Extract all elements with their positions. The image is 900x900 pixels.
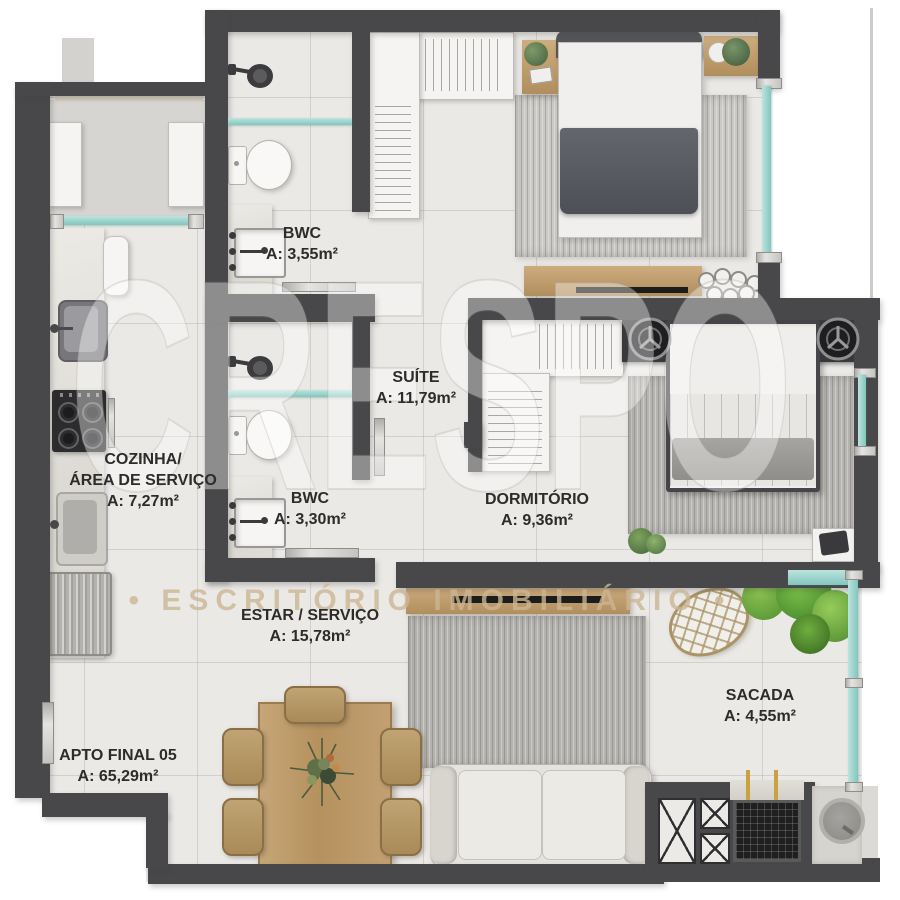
hall-glass-partition (62, 216, 188, 225)
shower-top (226, 56, 276, 92)
wall-dorm-door-stub (464, 422, 482, 448)
estar-tv (452, 596, 602, 603)
wall-bottom (148, 864, 664, 884)
washing-machine (46, 572, 112, 656)
wall-bwc-bottom-right (352, 322, 370, 480)
room-area: A: 11,79m² (376, 389, 456, 410)
label-suite: SUÍTE A: 11,79m² (376, 368, 456, 410)
dining-chair-top (284, 686, 346, 724)
railing-post-bottom (845, 782, 863, 792)
dining-chair-left-2 (222, 798, 264, 856)
dorm-closet-top (482, 318, 624, 377)
hall-cabinet-right (168, 122, 204, 207)
sofa-cushion-right (542, 770, 626, 860)
room-area: A: 7,27m² (69, 492, 217, 513)
wall-bwc-top-right (352, 32, 370, 212)
dining-chair-left-1 (222, 728, 264, 786)
wall-hall-top (15, 82, 210, 96)
bbq-grill (733, 800, 801, 862)
dorm-window (858, 375, 866, 447)
dorm-plant-b (646, 534, 666, 554)
table-centerpiece (278, 728, 366, 816)
toilet-bowl-bottom (246, 410, 292, 460)
suite-bed-blanket (560, 128, 698, 214)
floor-plan: CRESPO • ESCRITÓRIO IMOBILIÁRIO • BWC A:… (0, 0, 900, 900)
outside-top-left (0, 0, 205, 82)
label-dormitorio: DORMITÓRIO A: 9,36m² (485, 490, 589, 532)
wall-bottom-left-v (146, 812, 168, 868)
room-name: ESTAR / SERVIÇO (241, 606, 379, 627)
dining-chair-right-2 (380, 798, 422, 856)
room-name: SACADA (724, 686, 796, 707)
suite-closet-leg (368, 32, 420, 219)
shower-glass-top (228, 118, 352, 125)
label-bwc-bottom: BWC A: 3,30m² (274, 489, 346, 531)
outside-sacada-right (862, 572, 900, 786)
sacada-sink (819, 798, 865, 844)
outside-top-right (780, 0, 900, 298)
room-name: DORMITÓRIO (485, 490, 589, 511)
sofa-cushion-left (458, 770, 542, 860)
toilet-flush-top (234, 161, 239, 166)
dorm-window-cap-bottom (854, 446, 876, 456)
bbq-skewer-1 (746, 770, 750, 802)
outside-left (0, 82, 15, 900)
suite-door-threshold (374, 418, 385, 476)
wall-dorm-closet-frame (468, 314, 482, 472)
toilet-bowl-top (246, 140, 292, 190)
sofa-arm-left (430, 766, 457, 864)
railing-post-mid (845, 678, 863, 688)
suite-magazine (529, 67, 553, 85)
room-area: A: 3,55m² (266, 245, 338, 266)
room-name: BWC (266, 224, 338, 245)
dorm-desk-object (819, 530, 850, 556)
apartment-name: APTO FINAL 05 (59, 746, 177, 767)
oven-handle (108, 398, 115, 448)
room-name: BWC (274, 489, 346, 510)
door-threshold-bwc-top (282, 282, 356, 292)
wall-bwc-divider (205, 294, 375, 322)
bbq-skewer-2 (774, 770, 778, 802)
room-name-2: ÁREA DE SERVIÇO (69, 471, 217, 492)
sacada-plant-d (790, 614, 830, 654)
kitchen-faucet-arm (57, 327, 73, 330)
label-sacada: SACADA A: 4,55m² (724, 686, 796, 728)
left-wall-window (42, 702, 54, 764)
door-threshold-bwc-bottom (285, 548, 359, 558)
estar-rug (408, 616, 646, 768)
cooktop (52, 390, 106, 452)
sacada-door-glass (788, 570, 850, 585)
room-area: A: 9,36m² (485, 511, 589, 532)
label-cozinha: COZINHA/ ÁREA DE SERVIÇO A: 7,27m² (69, 450, 217, 512)
hall-cabinet-left (48, 122, 82, 207)
duct-shaft-small-2 (700, 833, 730, 864)
room-name: SUÍTE (376, 368, 456, 389)
suite-plant-left (524, 42, 548, 66)
dining-chair-right-1 (380, 728, 422, 786)
dorm-wheel-left (628, 317, 672, 361)
wall-top (205, 10, 778, 32)
kitchen-appliance (103, 236, 129, 296)
shower-bottom (226, 348, 276, 384)
room-area: A: 15,78m² (241, 627, 379, 648)
suite-window (762, 86, 771, 254)
wall-bwc-bottom (205, 558, 375, 582)
dorm-wheel-right (816, 317, 860, 361)
tank-faucet (50, 520, 59, 529)
outside-bottom (0, 882, 900, 900)
dorm-throw (672, 438, 814, 480)
label-bwc-top: BWC A: 3,55m² (266, 224, 338, 266)
label-apartment: APTO FINAL 05 A: 65,29m² (59, 746, 177, 788)
toilet-flush-bottom (234, 431, 239, 436)
exterior-slab-line (870, 8, 873, 300)
hall-glass-cap-right (188, 214, 204, 229)
suite-plant-right (722, 38, 750, 66)
shower-glass-bottom (228, 390, 352, 397)
outside-window-strip (771, 84, 780, 256)
hall-glass-cap-left (50, 214, 64, 229)
label-estar: ESTAR / SERVIÇO A: 15,78m² (241, 606, 379, 648)
apartment-area: A: 65,29m² (59, 767, 177, 788)
wall-left-outer (15, 82, 50, 798)
suite-tv (576, 287, 688, 293)
duct-shaft-large (658, 798, 696, 864)
duct-shaft-small-1 (700, 798, 730, 829)
bbq-counter (730, 780, 804, 800)
suite-window-cap-bottom (756, 252, 782, 263)
dorm-closet-leg (482, 373, 550, 472)
wall-suite-right-a (758, 10, 780, 88)
railing-post-top (845, 570, 863, 580)
room-area: A: 4,55m² (724, 707, 796, 728)
room-name: COZINHA/ (69, 450, 217, 471)
room-area: A: 3,30m² (274, 510, 346, 531)
